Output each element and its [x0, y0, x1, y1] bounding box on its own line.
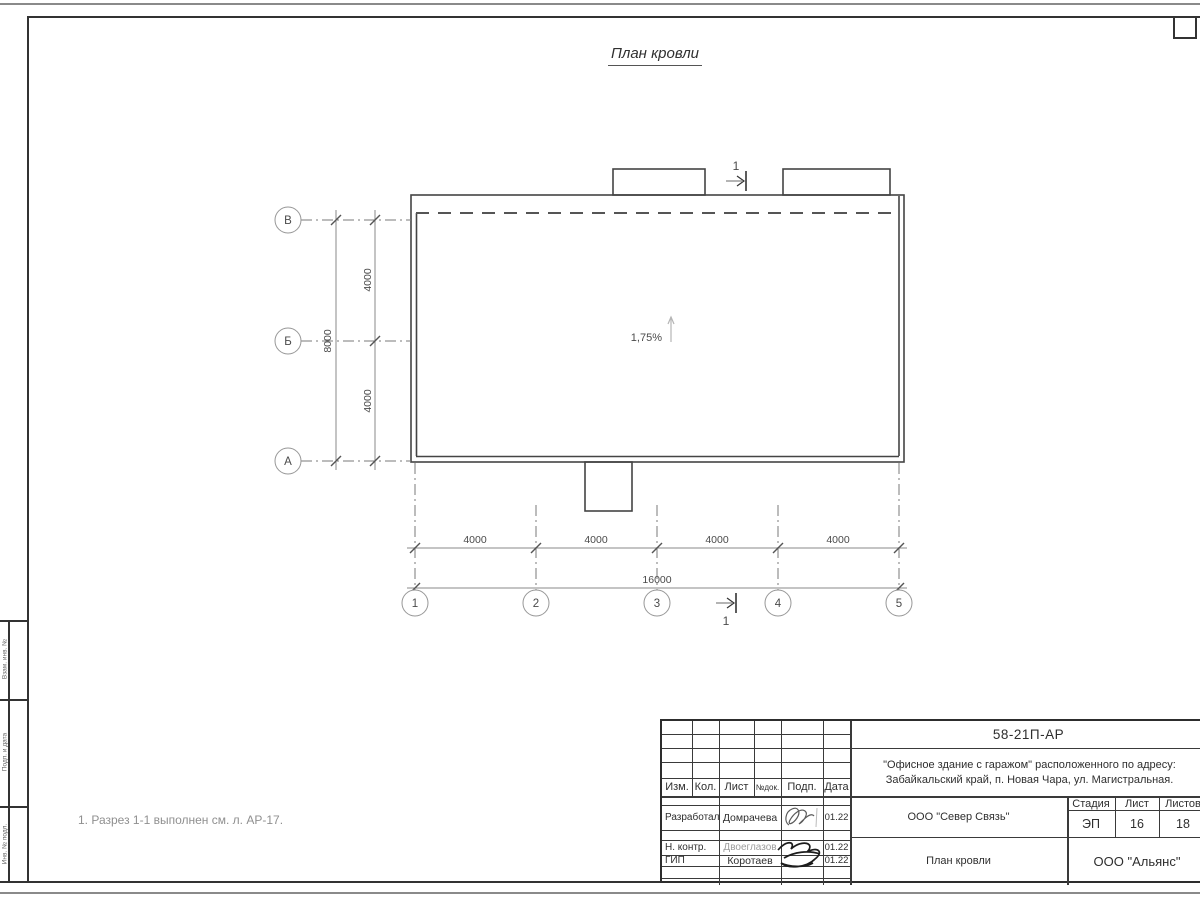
project-line2: Забайкальский край, п. Новая Чара, ул. М…: [886, 773, 1174, 788]
staff-date-0: 01.22: [823, 805, 850, 830]
tb-line: [662, 762, 850, 763]
project-address: "Офисное здание с гаражом" расположенног…: [857, 750, 1200, 796]
staff-name-1: Двоеглазов: [719, 840, 781, 855]
staff-role-0: Разработал: [662, 805, 722, 830]
stage-value: ЭП: [1067, 810, 1115, 837]
axis-label-4: 4: [775, 598, 782, 610]
signature-scribble: [774, 838, 828, 874]
staff-role-2: ГИП: [662, 855, 722, 866]
axis-label-v: В: [284, 215, 292, 227]
staff-name-2: Коротаев: [719, 855, 781, 866]
staff-role-1: Н. контр.: [662, 840, 722, 855]
axis-label-2: 2: [533, 598, 539, 610]
side-stamp-label-vzam: Взам. инв. №: [2, 639, 9, 679]
tb-line: [662, 734, 850, 735]
org-designer: ООО "Альянс": [1067, 837, 1200, 885]
sheets-total-header: Листов: [1159, 797, 1200, 810]
drawing-name: План кровли: [850, 837, 1067, 885]
stage-header: Стадия: [1067, 797, 1115, 810]
dim-4000-a: 4000: [463, 534, 487, 546]
sheet-header: Лист: [1115, 797, 1159, 810]
tb-line: [662, 748, 1200, 749]
rev-header-list: Лист: [719, 778, 754, 796]
slope-label: 1,75%: [631, 332, 662, 344]
dim-4000-lower: 4000: [362, 389, 374, 413]
section-number-bottom: 1: [723, 614, 730, 628]
side-stamp-label-podp: Подп. и дата: [2, 733, 9, 771]
doc-number: 58-21П-АР: [850, 721, 1200, 748]
axis-label-3: 3: [654, 598, 660, 610]
org-customer: ООО "Север Связь": [850, 797, 1067, 837]
sheets-total-value: 18: [1159, 810, 1200, 837]
section-mark-bottom: 1: [716, 593, 736, 628]
slope-arrow-icon: [668, 317, 674, 342]
dim-4000-upper: 4000: [362, 268, 374, 292]
sheet-edge-bottom: [0, 892, 1200, 894]
roof-hatch-1: [613, 169, 705, 195]
dim-4000-d: 4000: [826, 534, 850, 546]
dim-4000-b: 4000: [584, 534, 608, 546]
title-block: Изм. Кол. Лист №док. Подп. Дата Разработ…: [660, 719, 1200, 883]
dimension-labels: 8000 4000 4000 4000 4000 4000 4000 16000: [322, 268, 850, 586]
rev-header-izm: Изм.: [662, 778, 692, 796]
side-stamp-label-inv: Инв. № подл.: [2, 824, 9, 865]
signature-domracheva: [781, 804, 823, 831]
drawing-sheet: { "title": "План кровли", "note": "1. Ра…: [0, 0, 1200, 900]
axis-label-a: А: [284, 456, 292, 468]
rev-header-doc: №док.: [754, 778, 781, 796]
axis-label-1: 1: [412, 598, 418, 610]
axis-label-5: 5: [896, 598, 902, 610]
entrance-canopy: [585, 462, 632, 511]
sheet-value: 16: [1115, 810, 1159, 837]
rev-header-data: Дата: [823, 778, 850, 796]
section-number-top: 1: [733, 159, 740, 173]
dimension-lines: [336, 210, 907, 588]
section-mark-top: 1: [726, 159, 746, 191]
roof-hatch-2: [783, 169, 890, 195]
project-line1: "Офисное здание с гаражом" расположенног…: [883, 758, 1176, 773]
side-stamp-line: [0, 620, 28, 622]
staff-name-0: Домрачева: [719, 805, 781, 830]
axis-label-b: Б: [284, 336, 292, 348]
side-stamp-line: [0, 806, 28, 808]
rev-header-kol: Кол.: [692, 778, 719, 796]
dim-4000-c: 4000: [705, 534, 729, 546]
dim-8000: 8000: [322, 329, 334, 353]
slope-annotation: 1,75%: [631, 317, 674, 344]
drawing-note: 1. Разрез 1-1 выполнен см. л. АР-17.: [78, 813, 283, 827]
dim-16000: 16000: [642, 574, 671, 586]
tb-line: [662, 878, 850, 879]
rev-header-podp: Подп.: [781, 778, 823, 796]
axis-labels: В Б А 1 2 3 4 5: [284, 215, 902, 610]
roof-plan-drawing: В Б А 1 2 3 4 5 8000 4000 4000 4000 4000…: [0, 0, 1200, 660]
side-stamp-line: [0, 699, 28, 701]
